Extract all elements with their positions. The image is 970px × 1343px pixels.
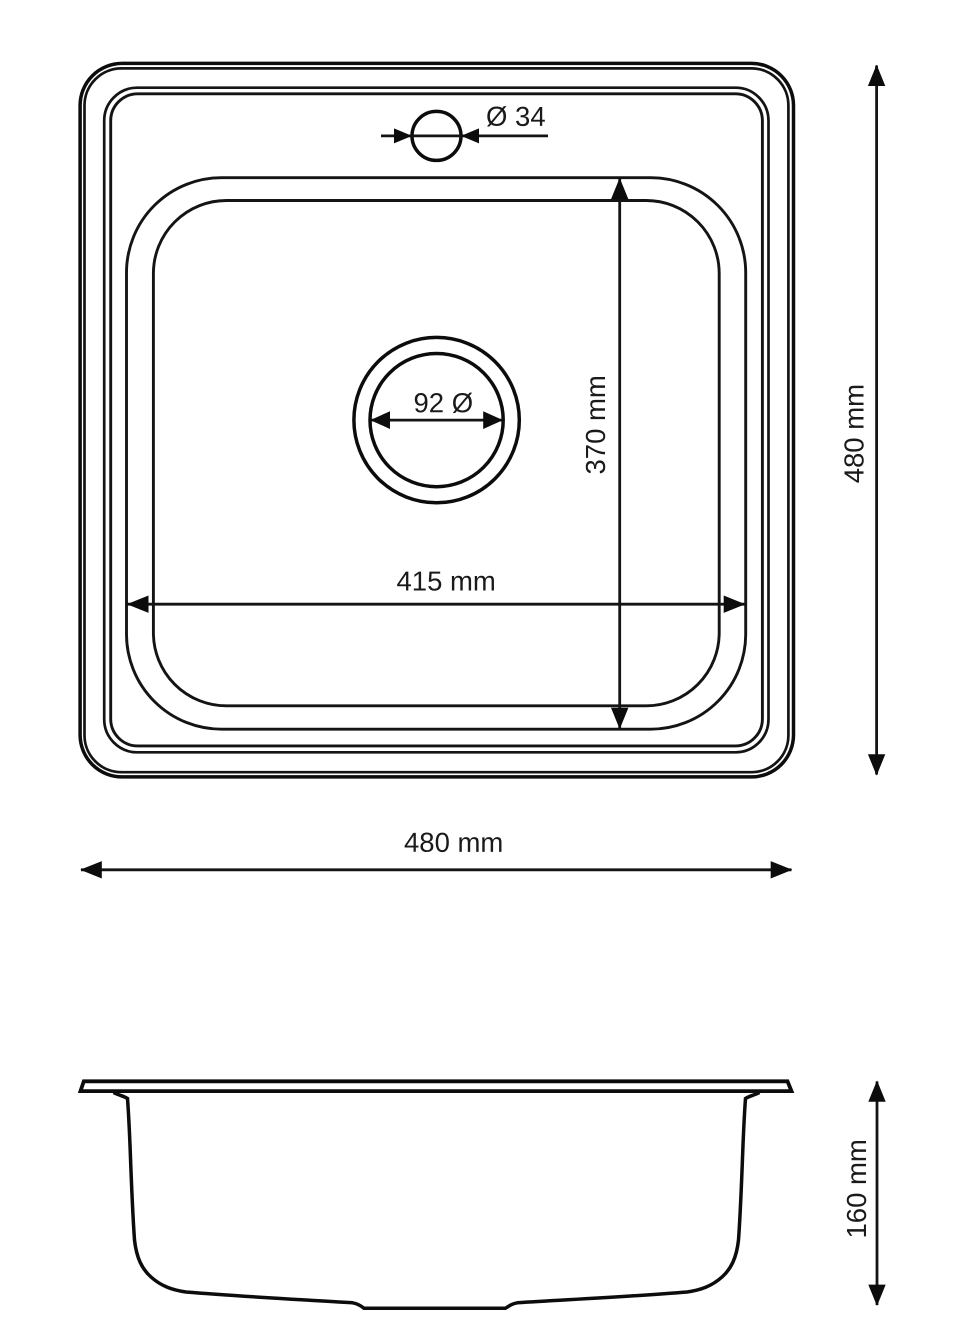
svg-text:480 mm: 480 mm: [404, 827, 503, 858]
svg-text:92 Ø: 92 Ø: [413, 387, 473, 418]
svg-text:160 mm: 160 mm: [841, 1139, 872, 1238]
svg-text:480 mm: 480 mm: [839, 384, 870, 483]
svg-text:370 mm: 370 mm: [580, 375, 611, 474]
svg-text:415 mm: 415 mm: [396, 566, 495, 597]
svg-text:Ø 34: Ø 34: [486, 101, 546, 132]
